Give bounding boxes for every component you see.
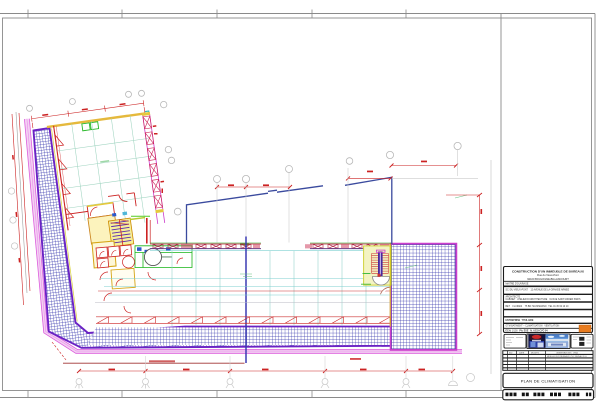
svg-text:ECH: 1/100 Ph: EXE N. A233: ECH: 1/100 Ph: EXE N. A233-CVC-04 bbox=[506, 329, 549, 332]
svg-text:MISE A JOUR RESEAUX CVC NIVEAU: MISE A JOUR RESEAUX CVC NIVEAU R+5 bbox=[547, 355, 588, 358]
svg-text:Rue du Vieux-Pont: Rue du Vieux-Pont bbox=[537, 273, 559, 277]
svg-text:BET FLUIDES 75 BD HAUSSM: BET FLUIDES 75 BD HAUSSMANN TEL 01 45 62… bbox=[506, 305, 570, 308]
svg-text:CABINET ATELIER D'ARCHITECTU: CABINET ATELIER D'ARCHITECTURE 31 RUE SA… bbox=[506, 298, 581, 301]
svg-text:SCI DU VIEUX-PONT 12 AVENUE: SCI DU VIEUX-PONT 12 AVENUE DE LA GRANDE… bbox=[506, 289, 570, 292]
svg-text:IND: IND bbox=[509, 352, 513, 354]
svg-text:MAITRE D'OUVRAGE: MAITRE D'OUVRAGE bbox=[506, 283, 529, 286]
svg-text:CONSTRUCTION D'UN IMMEUBLE DE: CONSTRUCTION D'UN IMMEUBLE DE BUREAUX bbox=[512, 269, 585, 273]
svg-text:MODIFS: MODIFS bbox=[531, 352, 539, 354]
svg-text:ENTREPRISE TITULAIRE: ENTREPRISE TITULAIRE bbox=[506, 319, 534, 322]
svg-text:OBSERVATIONS VISA: OBSERVATIONS VISA bbox=[556, 351, 578, 354]
svg-text:DATE: DATE bbox=[519, 351, 525, 354]
svg-text:PLAN DE CLIMATISATION: PLAN DE CLIMATISATION bbox=[521, 378, 576, 383]
svg-text:92100 BOULOGNE-BILLANCOURT: 92100 BOULOGNE-BILLANCOURT bbox=[527, 277, 569, 281]
svg-text:GTM BATIMENT – CLIMATISATION: GTM BATIMENT – CLIMATISATION VENTILATION bbox=[506, 325, 560, 328]
